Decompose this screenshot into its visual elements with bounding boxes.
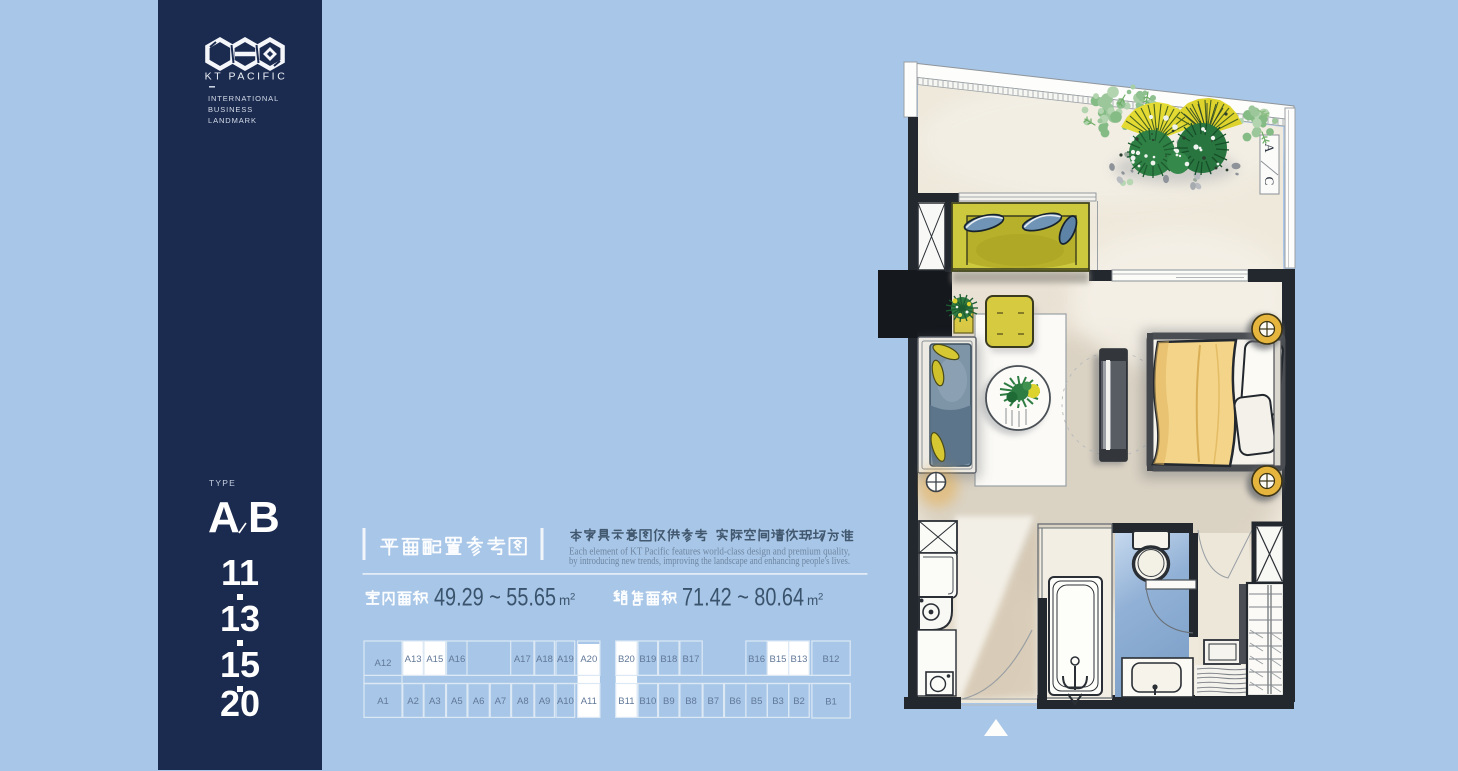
svg-text:BUSINESS: BUSINESS bbox=[208, 105, 253, 114]
svg-text:B5: B5 bbox=[751, 696, 763, 707]
svg-text:C: C bbox=[1262, 177, 1277, 186]
svg-text:B15: B15 bbox=[770, 654, 787, 665]
svg-text:B7: B7 bbox=[707, 696, 719, 707]
svg-text:A: A bbox=[1262, 143, 1277, 153]
svg-text:m: m bbox=[807, 593, 818, 608]
svg-text:15: 15 bbox=[220, 644, 260, 685]
svg-text:INTERNATIONAL: INTERNATIONAL bbox=[208, 94, 279, 103]
svg-text:A17: A17 bbox=[514, 654, 531, 665]
svg-text:A3: A3 bbox=[429, 696, 441, 707]
svg-text:A11: A11 bbox=[581, 696, 597, 707]
svg-text:B18: B18 bbox=[660, 654, 677, 665]
svg-text:KT PACIFIC: KT PACIFIC bbox=[205, 71, 288, 83]
svg-text:B17: B17 bbox=[683, 654, 700, 665]
svg-text:71.42 ~ 80.64: 71.42 ~ 80.64 bbox=[682, 584, 804, 612]
svg-text:49.29 ~ 55.65: 49.29 ~ 55.65 bbox=[434, 584, 556, 612]
svg-text:11: 11 bbox=[221, 552, 259, 593]
svg-text:TYPE: TYPE bbox=[209, 478, 236, 488]
svg-text:A15: A15 bbox=[426, 654, 443, 665]
svg-text:B1: B1 bbox=[825, 696, 837, 707]
svg-text:A7: A7 bbox=[495, 696, 507, 707]
svg-text:B: B bbox=[248, 493, 280, 542]
svg-text:B6: B6 bbox=[729, 696, 741, 707]
svg-text:A8: A8 bbox=[517, 696, 529, 707]
svg-text:m: m bbox=[559, 593, 570, 608]
svg-text:2: 2 bbox=[818, 592, 823, 603]
svg-text:A5: A5 bbox=[451, 696, 463, 707]
svg-text:A19: A19 bbox=[557, 654, 574, 665]
svg-text:B2: B2 bbox=[793, 696, 805, 707]
svg-text:2: 2 bbox=[570, 592, 575, 603]
svg-text:B10: B10 bbox=[639, 696, 656, 707]
svg-text:B9: B9 bbox=[663, 696, 675, 707]
svg-text:LANDMARK: LANDMARK bbox=[208, 116, 257, 125]
svg-text:by introducing new trends, imp: by introducing new trends, improving the… bbox=[569, 556, 850, 567]
svg-text:B8: B8 bbox=[685, 696, 697, 707]
svg-text:B11: B11 bbox=[618, 696, 634, 707]
svg-text:B16: B16 bbox=[748, 654, 765, 665]
svg-text:A18: A18 bbox=[536, 654, 553, 665]
svg-text:B20: B20 bbox=[618, 654, 635, 665]
svg-text:13: 13 bbox=[220, 598, 260, 639]
svg-text:A16: A16 bbox=[448, 654, 465, 665]
svg-text:B3: B3 bbox=[772, 696, 784, 707]
svg-text:B12: B12 bbox=[823, 654, 840, 665]
svg-text:B13: B13 bbox=[791, 654, 808, 665]
svg-text:A13: A13 bbox=[405, 654, 422, 665]
svg-text:A1: A1 bbox=[377, 696, 389, 707]
svg-text:A20: A20 bbox=[580, 654, 597, 665]
svg-text:A6: A6 bbox=[473, 696, 485, 707]
svg-text:A: A bbox=[208, 493, 240, 542]
svg-text:A9: A9 bbox=[539, 696, 551, 707]
svg-text:B19: B19 bbox=[639, 654, 656, 665]
svg-text:A2: A2 bbox=[407, 696, 419, 707]
svg-text:A12: A12 bbox=[375, 658, 392, 669]
svg-text:A10: A10 bbox=[557, 696, 574, 707]
